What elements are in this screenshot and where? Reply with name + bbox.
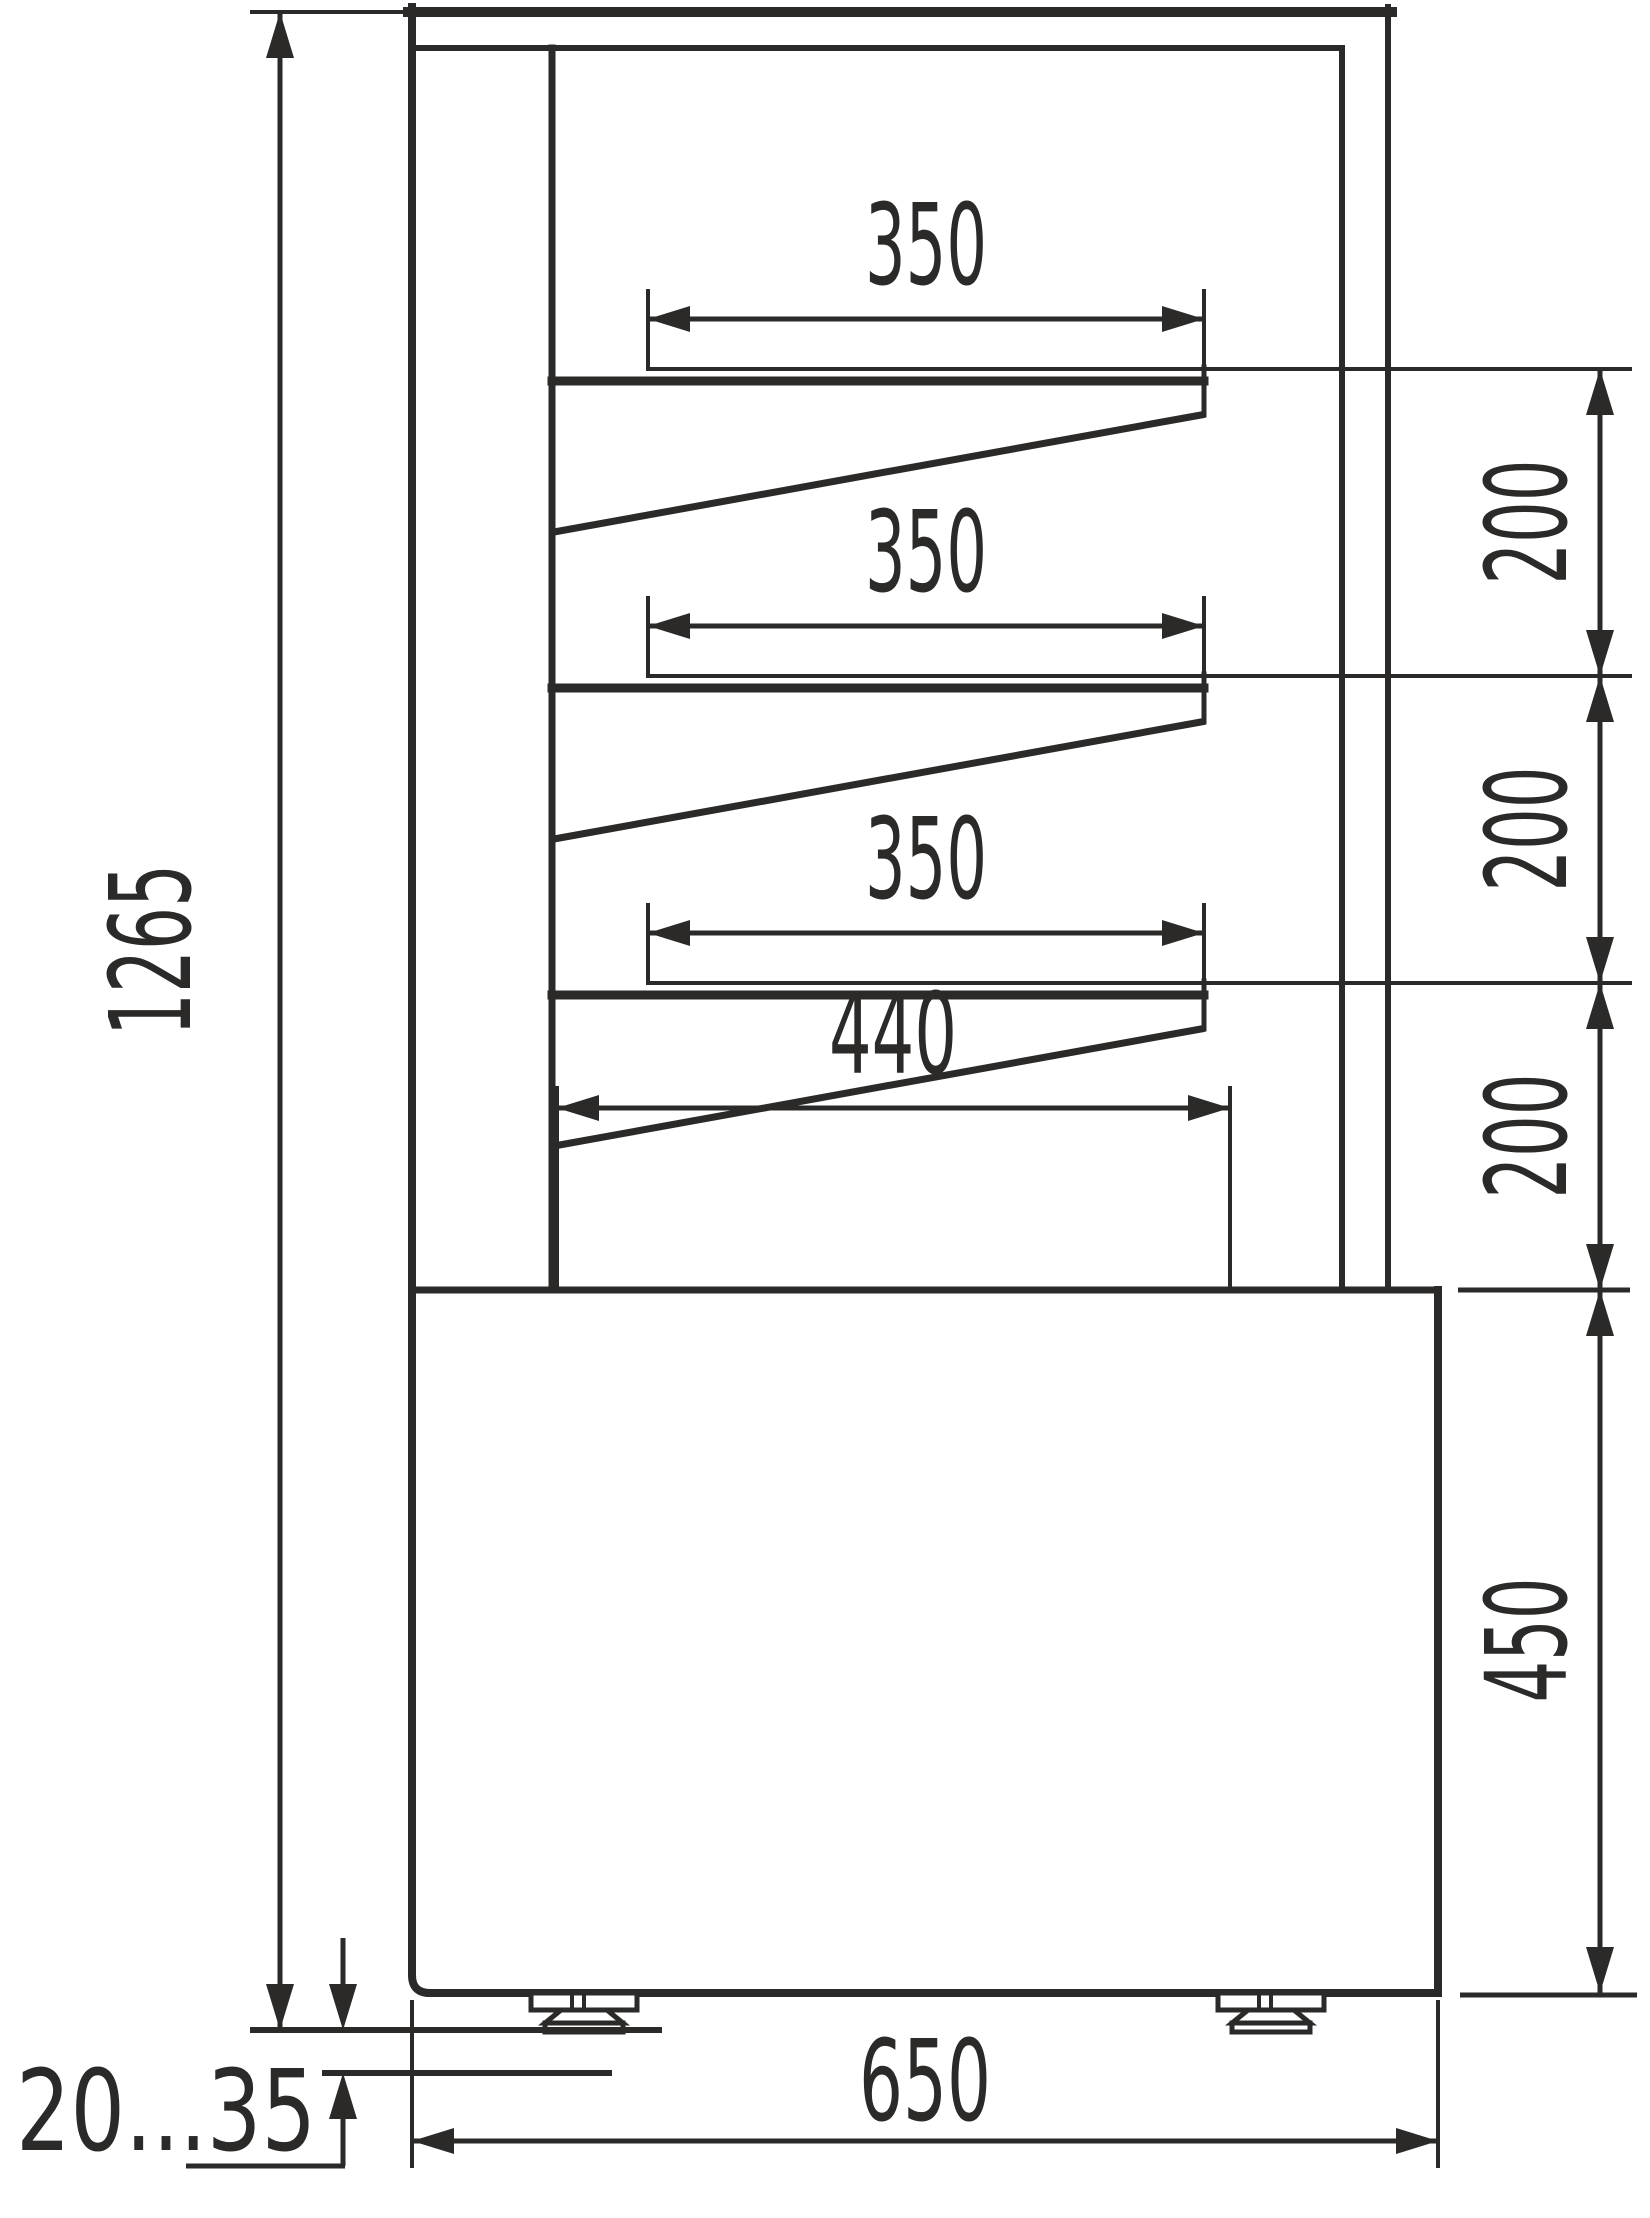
arrow-down-icon (1586, 630, 1614, 676)
dim-label-shelf-1-depth: 350 (865, 181, 987, 311)
dim-label-overall-height: 1265 (87, 864, 217, 1036)
left-foot (531, 1993, 637, 2032)
dim-label-bottom-shelf-depth: 440 (829, 970, 957, 1100)
arrow-down-icon (1586, 937, 1614, 983)
arrow-left-icon (557, 1095, 599, 1121)
arrow-up-icon (1586, 369, 1614, 415)
arrow-up-icon (1586, 1290, 1614, 1336)
arrow-up-icon (266, 12, 294, 58)
arrow-left-icon (412, 2128, 454, 2154)
arrow-up-icon (1586, 983, 1614, 1029)
dim-label-feet-adjustment: 20...35 (16, 2047, 316, 2177)
dim-overall-height: 1265 (87, 12, 294, 2030)
arrow-up-icon (329, 2073, 357, 2119)
display-case-side-view-drawing: 1265 350 350 350 440 (0, 0, 1650, 2218)
dim-base-height: 450 (1460, 1290, 1637, 1995)
dim-label-shelf-2-depth: 350 (865, 488, 987, 618)
arrow-left-icon (648, 920, 690, 946)
arrow-up-icon (1586, 676, 1614, 722)
arrow-down-icon (1586, 1244, 1614, 1290)
base-cabinet-outline (412, 1290, 1438, 1993)
arrow-right-icon (1188, 1095, 1230, 1121)
dim-label-shelf-gap-1: 200 (1463, 460, 1593, 585)
dim-shelf-gaps: 200 200 200 (1458, 369, 1630, 1290)
arrow-right-icon (1396, 2128, 1438, 2154)
dim-label-overall-depth: 650 (859, 2017, 991, 2147)
dim-feet-adjustment: 20...35 (16, 1938, 357, 2177)
dim-shelf-3-depth: 350 (648, 795, 1204, 985)
right-foot (1218, 1993, 1324, 2032)
technical-drawing-page: 1265 350 350 350 440 (0, 0, 1650, 2218)
dim-label-shelf-gap-2: 200 (1463, 767, 1593, 892)
right-foot-pad (1232, 2023, 1310, 2032)
dim-label-base-height: 450 (1463, 1578, 1593, 1703)
dim-shelf-2-depth: 350 (648, 488, 1204, 678)
arrow-down-icon (266, 1984, 294, 2030)
dim-label-shelf-3-depth: 350 (865, 795, 987, 925)
dim-shelf-1-depth: 350 (648, 181, 1204, 371)
arrow-down-icon (1586, 1947, 1614, 1993)
arrow-down-icon (329, 1984, 357, 2030)
arrow-right-icon (1162, 920, 1204, 946)
dim-label-shelf-gap-3: 200 (1463, 1074, 1593, 1199)
arrow-left-icon (648, 613, 690, 639)
arrow-right-icon (1162, 613, 1204, 639)
arrow-right-icon (1162, 306, 1204, 332)
arrow-left-icon (648, 306, 690, 332)
